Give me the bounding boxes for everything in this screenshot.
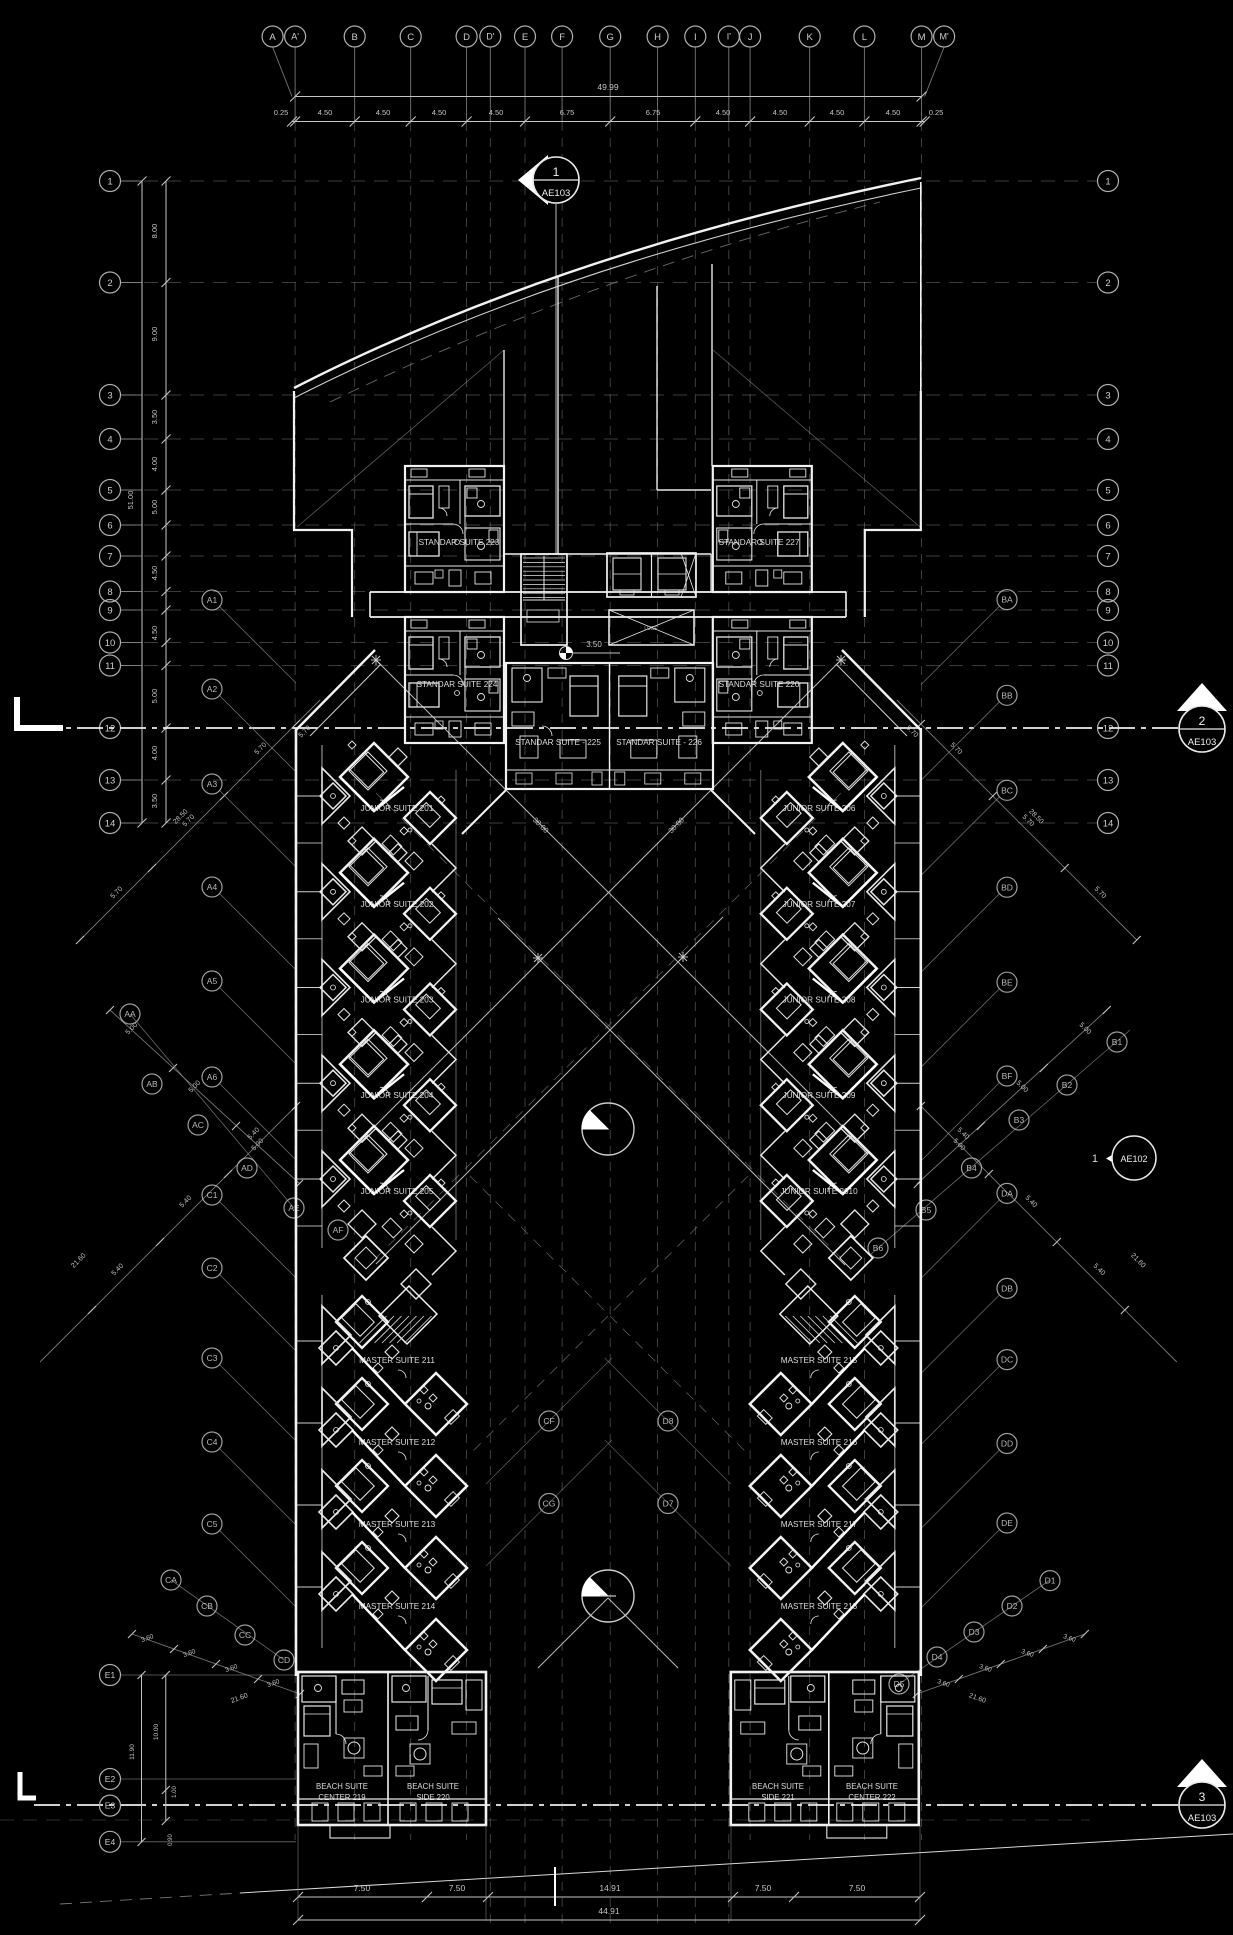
svg-text:MASTER SUITE 215: MASTER SUITE 215 <box>781 1356 858 1365</box>
svg-text:0.25: 0.25 <box>274 108 289 117</box>
svg-text:AE: AE <box>288 1203 300 1213</box>
svg-text:CG: CG <box>543 1499 556 1509</box>
svg-text:LUCE: LUCE <box>644 626 658 632</box>
svg-text:STANDAR SUITE 224: STANDAR SUITE 224 <box>417 680 498 689</box>
svg-text:BF: BF <box>1002 1071 1013 1081</box>
svg-text:CA: CA <box>165 1575 177 1585</box>
svg-text:3.50: 3.50 <box>150 794 159 809</box>
svg-text:7.50: 7.50 <box>449 1883 466 1893</box>
svg-text:BEACH SUITE: BEACH SUITE <box>846 1782 898 1791</box>
svg-text:7: 7 <box>1105 551 1110 562</box>
svg-text:1.00: 1.00 <box>172 1786 178 1798</box>
svg-text:CENTER 219: CENTER 219 <box>318 1793 365 1802</box>
svg-text:4.00: 4.00 <box>150 457 159 472</box>
svg-text:C5: C5 <box>207 1519 218 1529</box>
svg-text:9: 9 <box>1105 605 1110 616</box>
svg-text:7.50: 7.50 <box>755 1883 772 1893</box>
svg-text:E: E <box>522 32 528 43</box>
svg-text:3: 3 <box>1105 390 1110 401</box>
svg-text:DA: DA <box>1001 1189 1013 1199</box>
svg-text:14: 14 <box>105 818 116 829</box>
svg-text:7.50: 7.50 <box>849 1883 866 1893</box>
svg-text:8: 8 <box>1105 587 1110 598</box>
svg-text:1: 1 <box>553 165 560 179</box>
svg-text:1: 1 <box>107 176 112 187</box>
svg-text:JUNIOR SUITE 202: JUNIOR SUITE 202 <box>361 900 434 909</box>
svg-text:JUNIOR SUITE 206: JUNIOR SUITE 206 <box>783 804 856 813</box>
svg-text:0.90: 0.90 <box>168 1834 174 1846</box>
svg-text:D: D <box>463 32 470 43</box>
svg-text:STANDAR SUITE 223: STANDAR SUITE 223 <box>419 538 500 547</box>
svg-text:10.00: 10.00 <box>153 1723 160 1740</box>
svg-text:49.99: 49.99 <box>597 82 619 92</box>
svg-text:2: 2 <box>1105 278 1110 289</box>
svg-text:DC: DC <box>1001 1355 1013 1365</box>
svg-text:4.50: 4.50 <box>773 108 788 117</box>
svg-text:JUNIOR SUITE 204: JUNIOR SUITE 204 <box>361 1091 434 1100</box>
svg-text:AE103: AE103 <box>1188 737 1217 748</box>
svg-text:C4: C4 <box>207 1437 218 1447</box>
svg-text:44.91: 44.91 <box>598 1906 620 1916</box>
svg-text:1: 1 <box>1092 1153 1098 1165</box>
svg-text:8.00: 8.00 <box>150 224 159 239</box>
svg-text:6.75: 6.75 <box>560 108 575 117</box>
svg-text:C1: C1 <box>207 1190 218 1200</box>
svg-text:4.50: 4.50 <box>150 626 159 641</box>
svg-text:AB: AB <box>146 1079 158 1089</box>
svg-text:13: 13 <box>1103 775 1114 786</box>
svg-text:4.50: 4.50 <box>886 108 901 117</box>
svg-text:E2: E2 <box>105 1774 116 1784</box>
svg-text:C2: C2 <box>207 1263 218 1273</box>
svg-text:JUNIOR SUITE 207: JUNIOR SUITE 207 <box>783 900 856 909</box>
svg-text:STANDAR SUITE - 226: STANDAR SUITE - 226 <box>616 738 702 747</box>
svg-text:1: 1 <box>1105 176 1110 187</box>
svg-text:11.90: 11.90 <box>129 1744 136 1760</box>
svg-text:E1: E1 <box>105 1670 116 1680</box>
svg-text:MASTER SUITE 216: MASTER SUITE 216 <box>781 1438 858 1447</box>
svg-text:10: 10 <box>1103 638 1114 649</box>
svg-text:SIDE 220: SIDE 220 <box>416 1793 450 1802</box>
svg-text:M': M' <box>939 32 948 42</box>
svg-text:11: 11 <box>1103 661 1113 672</box>
svg-text:11: 11 <box>105 661 115 672</box>
svg-text:JUNIOR SUITE 2010: JUNIOR SUITE 2010 <box>780 1187 858 1196</box>
svg-text:L: L <box>862 32 867 43</box>
svg-text:JUNIOR SUITE 205: JUNIOR SUITE 205 <box>361 1187 434 1196</box>
svg-text:4.50: 4.50 <box>716 108 731 117</box>
svg-text:4: 4 <box>107 434 112 445</box>
svg-text:M: M <box>918 32 926 43</box>
svg-text:MASTER SUITE 211: MASTER SUITE 211 <box>359 1356 435 1365</box>
svg-text:F: F <box>559 32 565 43</box>
svg-text:D8: D8 <box>663 1416 674 1426</box>
svg-text:BC: BC <box>1001 785 1013 795</box>
svg-text:5.00: 5.00 <box>150 689 159 704</box>
svg-text:4.50: 4.50 <box>432 108 447 117</box>
svg-text:CB: CB <box>201 1601 213 1611</box>
svg-text:4.50: 4.50 <box>489 108 504 117</box>
svg-text:B2: B2 <box>1062 1080 1073 1090</box>
svg-text:AD: AD <box>241 1163 253 1173</box>
svg-text:4.50: 4.50 <box>318 108 333 117</box>
svg-text:BD: BD <box>1001 882 1013 892</box>
svg-text:B4: B4 <box>966 1163 977 1173</box>
svg-text:G: G <box>607 32 614 43</box>
svg-text:D3: D3 <box>969 1627 980 1637</box>
svg-text:D7: D7 <box>663 1499 674 1509</box>
svg-text:BB: BB <box>1001 690 1013 700</box>
svg-text:BEACH SUITE: BEACH SUITE <box>752 1782 804 1791</box>
svg-text:12: 12 <box>105 723 116 734</box>
svg-text:AF: AF <box>333 1225 344 1235</box>
svg-text:9: 9 <box>107 605 112 616</box>
svg-text:5: 5 <box>1105 485 1110 496</box>
svg-text:8: 8 <box>107 587 112 598</box>
svg-text:A3: A3 <box>207 779 218 789</box>
svg-text:DB: DB <box>1001 1284 1013 1294</box>
svg-text:JUNIOR SUITE 209: JUNIOR SUITE 209 <box>783 1091 856 1100</box>
svg-text:6: 6 <box>1105 520 1110 531</box>
svg-text:MASTER SUITE 213: MASTER SUITE 213 <box>359 1520 436 1529</box>
svg-text:D4: D4 <box>932 1652 943 1662</box>
svg-text:A: A <box>269 32 276 43</box>
svg-text:I': I' <box>727 32 732 42</box>
svg-text:A1: A1 <box>207 595 218 605</box>
svg-text:E3: E3 <box>105 1801 116 1811</box>
svg-text:D2: D2 <box>1007 1601 1018 1611</box>
svg-text:A': A' <box>291 32 299 42</box>
svg-text:A5: A5 <box>207 976 218 986</box>
svg-text:MASTER SUITE 212: MASTER SUITE 212 <box>359 1438 436 1447</box>
svg-text:STANDAR SUITE - 225: STANDAR SUITE - 225 <box>515 738 601 747</box>
svg-text:B5: B5 <box>921 1205 932 1215</box>
svg-text:12: 12 <box>1103 723 1114 734</box>
svg-text:B3: B3 <box>1014 1115 1025 1125</box>
svg-text:BEACH SUITE: BEACH SUITE <box>316 1782 368 1791</box>
svg-text:B6: B6 <box>873 1243 884 1253</box>
svg-text:4.50: 4.50 <box>830 108 845 117</box>
svg-text:A6: A6 <box>207 1072 218 1082</box>
svg-text:9.00: 9.00 <box>150 327 159 342</box>
svg-text:J: J <box>748 32 753 43</box>
svg-text:AE103: AE103 <box>1188 1813 1217 1824</box>
svg-text:4.50: 4.50 <box>376 108 391 117</box>
svg-text:BA: BA <box>1001 595 1013 605</box>
svg-text:STANDAR SUITE 220: STANDAR SUITE 220 <box>719 680 800 689</box>
svg-text:BE: BE <box>1001 977 1013 987</box>
svg-text:2: 2 <box>107 278 112 289</box>
svg-text:13: 13 <box>105 775 116 786</box>
svg-text:4.00: 4.00 <box>150 746 159 761</box>
svg-text:H: H <box>654 32 661 43</box>
svg-text:BEACH SUITE: BEACH SUITE <box>407 1782 459 1791</box>
svg-text:3.50: 3.50 <box>586 640 602 649</box>
svg-text:7: 7 <box>107 551 112 562</box>
svg-text:D1: D1 <box>1045 1576 1056 1586</box>
svg-text:B: B <box>352 32 358 43</box>
svg-text:AE102: AE102 <box>1120 1154 1147 1164</box>
svg-text:6.75: 6.75 <box>646 108 661 117</box>
svg-text:CD: CD <box>278 1655 290 1665</box>
svg-text:C3: C3 <box>207 1353 218 1363</box>
svg-text:I: I <box>694 32 697 43</box>
svg-text:MASTER SUITE 214: MASTER SUITE 214 <box>359 1602 436 1611</box>
svg-text:3: 3 <box>107 390 112 401</box>
svg-text:MASTER SUITE 218: MASTER SUITE 218 <box>781 1602 858 1611</box>
svg-text:14: 14 <box>1103 818 1114 829</box>
svg-text:5.00: 5.00 <box>150 500 159 515</box>
svg-text:JUNIOR SUITE 203: JUNIOR SUITE 203 <box>361 996 434 1005</box>
svg-text:A4: A4 <box>207 882 218 892</box>
svg-text:5: 5 <box>107 485 112 496</box>
svg-text:E4: E4 <box>105 1837 116 1847</box>
svg-text:AE103: AE103 <box>542 188 571 199</box>
svg-text:DE: DE <box>1001 1518 1013 1528</box>
svg-text:7.50: 7.50 <box>354 1883 371 1893</box>
svg-text:3.50: 3.50 <box>150 410 159 425</box>
svg-text:0.25: 0.25 <box>929 108 944 117</box>
svg-text:C: C <box>407 32 414 43</box>
svg-text:AC: AC <box>192 1120 204 1130</box>
svg-text:B1: B1 <box>1112 1037 1123 1047</box>
svg-text:STANDAR SUITE 227: STANDAR SUITE 227 <box>719 538 800 547</box>
svg-text:6: 6 <box>107 520 112 531</box>
svg-text:JUNIOR SUITE 208: JUNIOR SUITE 208 <box>783 996 856 1005</box>
svg-text:2: 2 <box>1199 714 1206 728</box>
svg-text:JUNIOR SUITE 201: JUNIOR SUITE 201 <box>361 804 434 813</box>
svg-text:CF: CF <box>543 1416 554 1426</box>
svg-text:CENTER 222: CENTER 222 <box>848 1793 895 1802</box>
svg-text:AA: AA <box>124 1009 136 1019</box>
svg-text:MASTER SUITE 217: MASTER SUITE 217 <box>781 1520 858 1529</box>
svg-text:51.00: 51.00 <box>126 491 135 510</box>
svg-text:14.91: 14.91 <box>599 1883 621 1893</box>
svg-text:SIDE 221: SIDE 221 <box>761 1793 794 1802</box>
svg-text:DD: DD <box>1001 1439 1013 1449</box>
svg-text:3: 3 <box>1199 1790 1206 1804</box>
svg-text:CC: CC <box>239 1630 251 1640</box>
svg-text:4: 4 <box>1105 434 1110 445</box>
svg-text:4.50: 4.50 <box>150 566 159 581</box>
svg-text:A2: A2 <box>207 684 218 694</box>
svg-text:D': D' <box>486 32 494 42</box>
svg-text:K: K <box>807 32 814 43</box>
svg-text:10: 10 <box>105 638 116 649</box>
